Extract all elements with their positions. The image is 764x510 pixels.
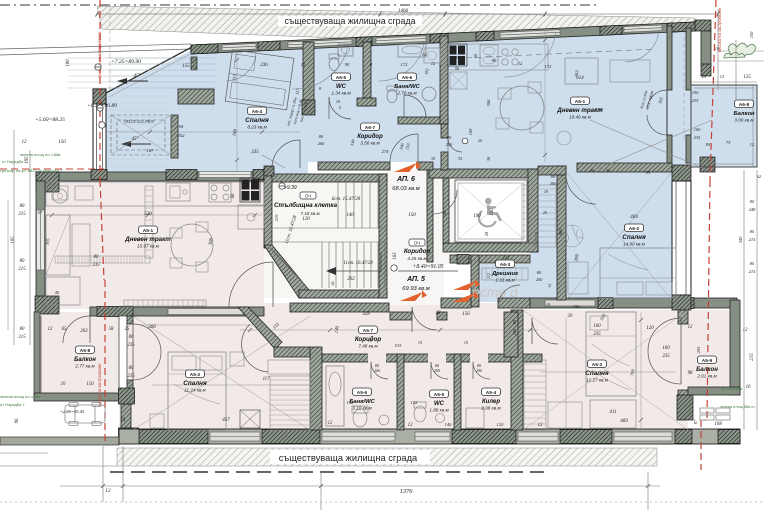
svg-text:от Наредба: от Наредба (722, 387, 743, 391)
svg-text:Балкон: Балкон (734, 111, 755, 117)
svg-text:12: 12 (422, 52, 427, 57)
svg-text:АП. 5: АП. 5 (406, 276, 425, 283)
svg-text:335: 335 (251, 150, 259, 155)
svg-text:7.18 кв.м: 7.18 кв.м (300, 211, 320, 216)
svg-text:235: 235 (127, 374, 135, 379)
svg-text:123: 123 (503, 255, 510, 260)
svg-text:100: 100 (593, 324, 601, 329)
svg-text:+9.39: +9.39 (284, 185, 297, 191)
svg-text:А5-1: А5-1 (143, 228, 154, 234)
svg-text:96: 96 (15, 418, 20, 423)
svg-text:69.93 кв.м: 69.93 кв.м (402, 286, 429, 292)
svg-text:15: 15 (464, 340, 468, 345)
svg-text:Килер: Килер (482, 399, 500, 405)
svg-text:25: 25 (125, 327, 130, 332)
svg-text:205: 205 (696, 346, 701, 353)
svg-text:252: 252 (178, 133, 186, 138)
svg-text:200: 200 (374, 368, 380, 373)
svg-text:215: 215 (18, 335, 26, 340)
svg-text:А6-7: А6-7 (365, 125, 376, 131)
svg-text:12: 12 (22, 140, 27, 145)
svg-text:94: 94 (179, 124, 184, 129)
svg-text:А5-7: А5-7 (363, 328, 374, 334)
svg-text:от Наредба 7: от Наредба 7 (0, 402, 25, 407)
svg-text:200: 200 (434, 368, 440, 373)
svg-text:Спалня: Спалня (245, 117, 269, 124)
svg-text:Баня/WC: Баня/WC (394, 84, 420, 90)
svg-text:160: 160 (490, 208, 495, 216)
svg-text:съществуваща жилищна сграда: съществуваща жилищна сграда (279, 453, 418, 463)
svg-text:150: 150 (58, 140, 66, 145)
svg-text:Балкон: Балкон (696, 367, 718, 373)
svg-text:95: 95 (706, 142, 711, 147)
svg-text:100: 100 (66, 59, 71, 67)
svg-text:А5-9: А5-9 (702, 358, 713, 364)
svg-text:328: 328 (362, 312, 370, 317)
svg-text:469: 469 (620, 419, 628, 424)
svg-text:100: 100 (662, 346, 670, 351)
svg-text:4.25 кв.м: 4.25 кв.м (407, 256, 427, 261)
svg-text:12: 12 (431, 61, 435, 66)
svg-text:172: 172 (545, 64, 553, 69)
svg-text:515: 515 (395, 343, 403, 348)
svg-text:линия на застрояване: линия на застрояване (97, 363, 102, 407)
svg-text:163: 163 (393, 252, 398, 260)
svg-text:7.48 кв.м: 7.48 кв.м (358, 344, 378, 349)
svg-text:А6-1: А6-1 (575, 99, 586, 105)
svg-text:172: 172 (401, 62, 409, 67)
svg-text:Коридор: Коридор (357, 134, 383, 140)
svg-text:411: 411 (609, 410, 616, 415)
svg-text:122: 122 (411, 400, 419, 405)
svg-text:248: 248 (749, 207, 756, 212)
svg-text:Спалня: Спалня (183, 380, 207, 387)
svg-text:80: 80 (20, 204, 25, 209)
svg-text:1.34 кв.м: 1.34 кв.м (331, 91, 351, 96)
svg-text:1376: 1376 (400, 488, 414, 495)
svg-text:19.40 кв.м: 19.40 кв.м (569, 115, 592, 120)
svg-text:90: 90 (345, 62, 350, 67)
svg-text:120: 120 (302, 217, 310, 222)
svg-text:А5-6: А5-6 (357, 390, 368, 396)
svg-text:3.00 кв.м: 3.00 кв.м (734, 118, 754, 123)
svg-text:Спалня: Спалня (585, 370, 609, 377)
svg-text:203: 203 (80, 329, 88, 334)
svg-text:100: 100 (692, 90, 699, 95)
svg-text:Спалня: Спалня (622, 234, 646, 241)
svg-text:съществуваща жилищна сграда: съществуваща жилищна сграда (285, 16, 416, 26)
svg-text:80: 80 (129, 335, 134, 340)
svg-text:от Наредба 7: от Наредба 7 (2, 159, 27, 164)
svg-text:А5-5: А5-5 (434, 392, 445, 398)
svg-text:12: 12 (538, 423, 543, 428)
svg-text:120: 120 (646, 326, 654, 331)
svg-text:469: 469 (630, 215, 638, 220)
svg-text:80: 80 (20, 259, 25, 264)
svg-text:1.31 кв.м: 1.31 кв.м (495, 278, 515, 283)
svg-text:+2.86=85.45: +2.86=85.45 (60, 409, 85, 414)
svg-text:185: 185 (11, 236, 16, 244)
svg-text:73: 73 (726, 140, 731, 145)
svg-text:14.00 кв.м: 14.00 кв.м (623, 242, 646, 247)
svg-text:20: 20 (436, 311, 441, 316)
svg-text:98: 98 (688, 371, 693, 376)
svg-text:50: 50 (454, 55, 459, 60)
svg-text:А6-6: А6-6 (402, 75, 413, 81)
svg-text:274: 274 (382, 149, 390, 154)
svg-text:А5-2: А5-2 (190, 372, 201, 378)
svg-text:100: 100 (694, 127, 701, 132)
svg-text:1466: 1466 (398, 7, 409, 14)
svg-text:460: 460 (558, 228, 563, 236)
svg-text:80: 80 (20, 327, 25, 332)
svg-text:200: 200 (476, 368, 482, 373)
svg-text:Балкон: Балкон (74, 357, 96, 363)
svg-text:А6-8: А6-8 (739, 102, 750, 108)
svg-text:100: 100 (468, 128, 473, 135)
svg-text:Дрешник: Дрешник (491, 271, 519, 277)
svg-text:457: 457 (222, 418, 230, 423)
svg-text:25: 25 (122, 416, 127, 421)
svg-text:235: 235 (662, 354, 670, 359)
svg-text:А5-3: А5-3 (592, 362, 603, 368)
svg-text:266: 266 (148, 325, 156, 330)
svg-text:-1.40: -1.40 (593, 107, 603, 112)
svg-text:асансьор: асансьор (534, 232, 538, 248)
svg-text:10: 10 (61, 382, 66, 387)
svg-text:108: 108 (714, 422, 722, 427)
svg-text:68.03 кв.м: 68.03 кв.м (392, 186, 419, 192)
svg-text:140: 140 (346, 213, 354, 218)
svg-text:12: 12 (105, 488, 111, 494)
svg-text:+8.40=91.05: +8.40=91.05 (412, 263, 443, 270)
svg-text:А6-3: А6-3 (500, 262, 511, 268)
svg-text:+5.60=88.25: +5.60=88.25 (35, 117, 65, 123)
svg-text:45°: 45° (134, 74, 141, 79)
svg-text:А5-8: А5-8 (80, 348, 91, 354)
svg-text:+7.25=89.90: +7.25=89.90 (111, 59, 141, 65)
svg-text:2.77 кв.м: 2.77 кв.м (74, 364, 95, 369)
svg-text:235: 235 (127, 343, 135, 348)
svg-text:WC: WC (336, 84, 347, 90)
svg-text:зелена площ по ч.88в: зелена площ по ч.88в (20, 152, 60, 157)
svg-text:А6-4: А6-4 (252, 109, 263, 115)
svg-text:12: 12 (408, 423, 413, 428)
svg-text:140: 140 (445, 422, 453, 427)
svg-text:А6-2: А6-2 (629, 226, 640, 232)
svg-text:12.27 кв.м: 12.27 кв.м (586, 378, 609, 383)
svg-text:АП. 6: АП. 6 (396, 176, 415, 183)
svg-text:215: 215 (18, 267, 26, 272)
svg-text:80: 80 (129, 366, 134, 371)
svg-text:граница на застрояване: граница на застрояване (97, 31, 102, 79)
svg-text:20: 20 (568, 314, 573, 319)
svg-text:12: 12 (328, 421, 333, 426)
svg-text:156: 156 (462, 312, 470, 317)
svg-text:235: 235 (92, 263, 100, 268)
svg-text:12: 12 (743, 328, 748, 333)
svg-text:65: 65 (62, 327, 67, 332)
svg-text:15.67 кв.м: 15.67 кв.м (137, 244, 160, 249)
svg-text:215: 215 (18, 212, 26, 217)
svg-text:60: 60 (231, 193, 236, 198)
svg-text:200: 200 (512, 328, 517, 335)
svg-text:11ст. 16.47/28: 11ст. 16.47/28 (343, 261, 373, 266)
svg-text:1.88 кв.м: 1.88 кв.м (429, 408, 449, 413)
svg-text:112: 112 (486, 272, 491, 279)
svg-text:А5-4: А5-4 (486, 390, 497, 396)
svg-text:235: 235 (593, 332, 601, 337)
svg-text:12: 12 (518, 61, 523, 66)
svg-text:А6-5: А6-5 (336, 75, 347, 81)
svg-text:190: 190 (473, 214, 481, 219)
svg-text:12: 12 (301, 62, 305, 67)
svg-text:200: 200 (536, 277, 543, 282)
svg-text:236: 236 (260, 63, 268, 68)
svg-text:6ст. 15.47/28: 6ст. 15.47/28 (332, 197, 361, 202)
svg-text:215: 215 (750, 353, 755, 361)
svg-text:8.23 кв.м: 8.23 кв.м (247, 125, 267, 130)
svg-text:100: 100 (749, 31, 754, 38)
svg-text:167: 167 (147, 148, 155, 153)
svg-text:215: 215 (749, 237, 756, 242)
svg-text:132: 132 (347, 400, 355, 405)
svg-text:2.70 кв.м: 2.70 кв.м (396, 91, 417, 96)
svg-text:Дневен тракт: Дневен тракт (124, 236, 171, 243)
svg-text:тротоар на ул. 88/2/ от Наредб: тротоар на ул. 88/2/ от Наредба 7 (0, 168, 63, 173)
svg-text:235: 235 (692, 98, 699, 103)
svg-text:Коридор: Коридор (404, 248, 431, 255)
svg-text:235: 235 (694, 135, 701, 140)
svg-text:Стълбищна клетка: Стълбищна клетка (274, 202, 338, 209)
svg-text:12: 12 (688, 325, 693, 330)
svg-text:340: 340 (738, 236, 743, 243)
svg-text:117: 117 (263, 377, 270, 382)
svg-text:5: 5 (339, 105, 341, 110)
svg-text:80: 80 (94, 255, 99, 260)
svg-text:ОЧ: ОЧ (414, 241, 420, 246)
svg-text:3.10 кв.м: 3.10 кв.м (352, 406, 372, 411)
svg-text:125: 125 (743, 75, 751, 80)
svg-text:10: 10 (746, 385, 751, 390)
svg-text:120: 120 (497, 422, 505, 427)
svg-text:90: 90 (492, 58, 497, 63)
svg-text:2.08 кв.м: 2.08 кв.м (480, 406, 501, 411)
svg-text:200: 200 (318, 141, 325, 146)
svg-text:150: 150 (408, 213, 416, 218)
svg-text:45°: 45° (132, 137, 139, 142)
svg-text:58: 58 (109, 327, 114, 332)
svg-text:3.56 кв.м: 3.56 кв.м (360, 141, 380, 146)
svg-text:200: 200 (446, 142, 453, 147)
svg-text:11.24 кв.м: 11.24 кв.м (184, 388, 206, 393)
svg-text:520: 520 (144, 212, 152, 217)
svg-text:WC: WC (434, 401, 445, 407)
svg-text:150: 150 (86, 382, 94, 387)
svg-text:ОЧ: ОЧ (305, 194, 311, 199)
svg-text:210: 210 (274, 214, 279, 221)
svg-text:зелена площ по ч.88в: зелена площ по ч.88в (0, 394, 40, 399)
svg-text:2.01 кв.м: 2.01 кв.м (696, 374, 717, 379)
svg-text:15: 15 (418, 340, 422, 345)
svg-text:202: 202 (347, 277, 355, 282)
svg-text:12: 12 (48, 327, 53, 332)
svg-text:155: 155 (182, 64, 190, 69)
svg-text:200: 200 (550, 181, 557, 186)
svg-text:VELUX GGL PK19: VELUX GGL PK19 (124, 120, 154, 124)
svg-text:306: 306 (486, 99, 491, 107)
svg-text:215: 215 (749, 269, 756, 274)
svg-text:100: 100 (573, 304, 580, 309)
